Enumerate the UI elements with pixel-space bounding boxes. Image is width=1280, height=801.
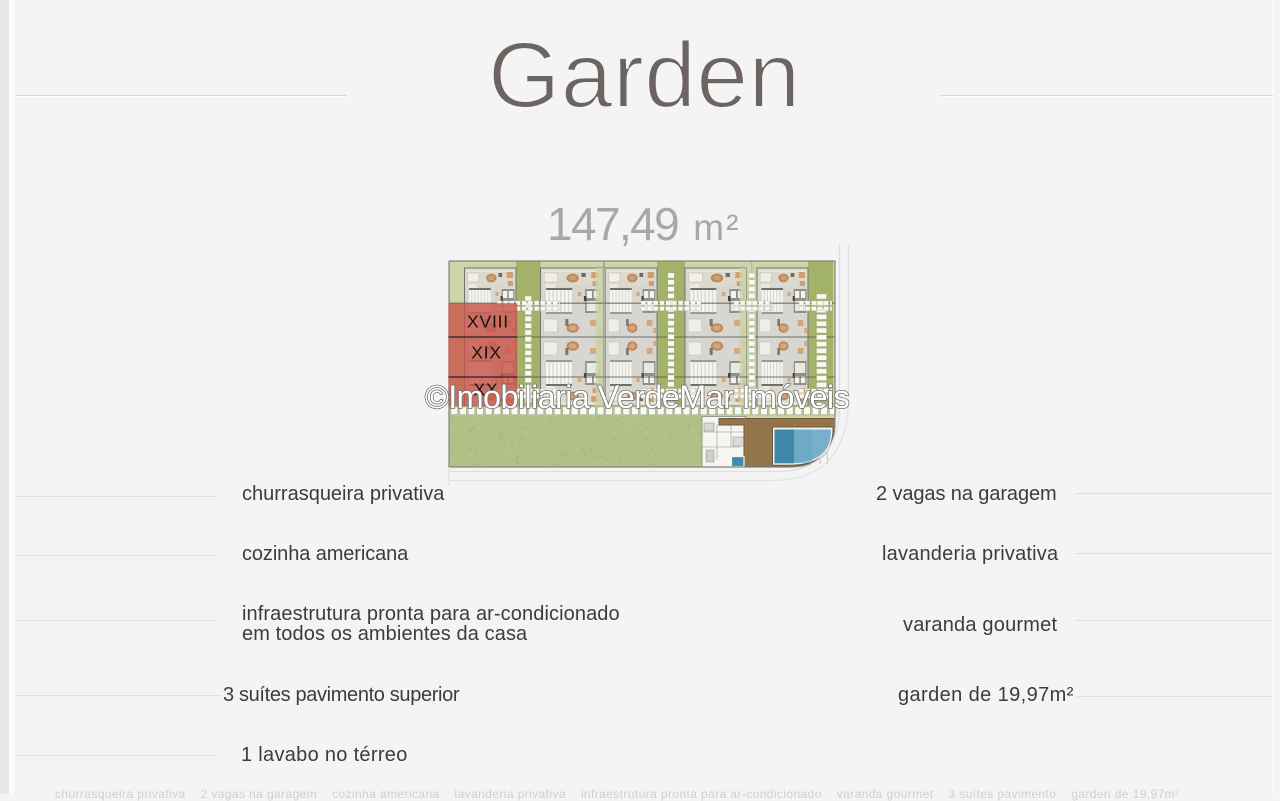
svg-text:XVIII: XVIII bbox=[467, 312, 509, 332]
svg-text:©Imobiliaria VerdeMar Imóveis: ©Imobiliaria VerdeMar Imóveis bbox=[425, 379, 850, 415]
svg-text:XIX: XIX bbox=[471, 343, 502, 363]
